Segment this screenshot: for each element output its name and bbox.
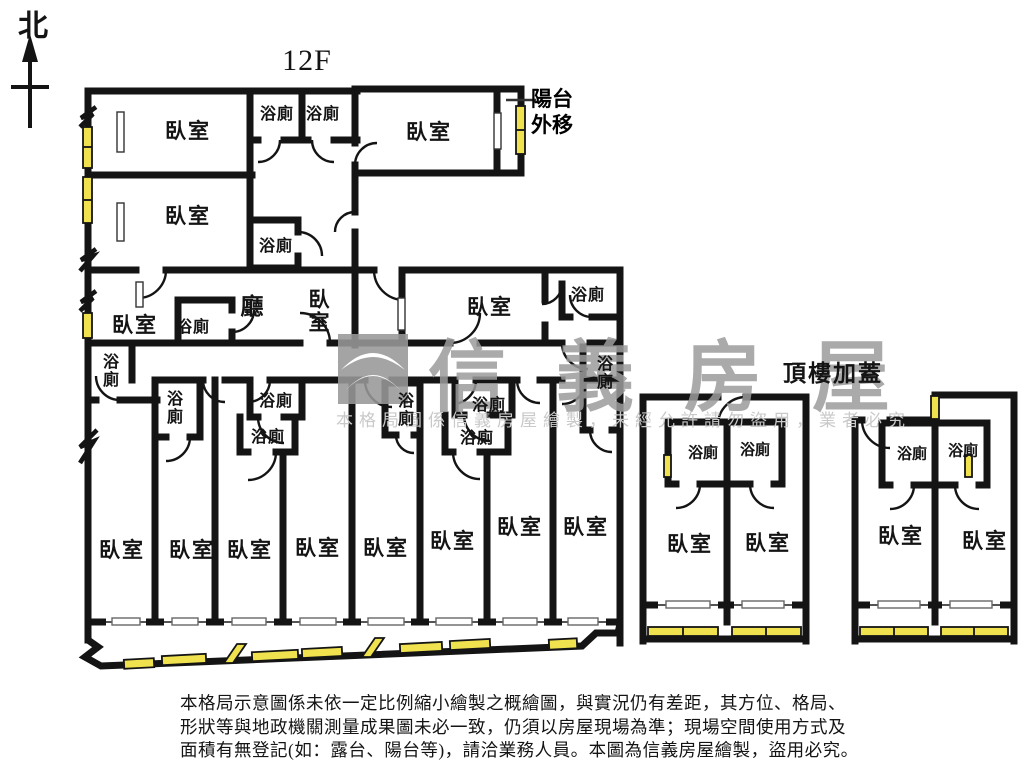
room-label-bedroom: 臥室 — [295, 532, 341, 562]
room-label-bedroom: 臥室 — [363, 532, 409, 562]
room-label-bathroom: 浴廁 — [96, 353, 120, 389]
room-label-bedroom: 臥室 — [962, 525, 1008, 555]
floor-title: 12F — [282, 44, 332, 78]
north-compass-icon — [11, 34, 49, 128]
compass-north-label: 北 — [18, 1, 48, 45]
room-label-bedroom: 臥室 — [112, 309, 158, 339]
disclaimer-line-1: 本格局示意圖係未依一定比例縮小繪製之概繪圖，與實況仍有差距，其方位、格局、 — [180, 692, 920, 716]
disclaimer-line-2: 形狀等與地政機關測量成果圖未必一致，仍須以房屋現場為準；現場空間使用方式及 — [180, 716, 920, 740]
room-label-bedroom: 臥室 — [667, 528, 713, 558]
room-label-living-room: 廳 — [241, 287, 264, 321]
room-label-bathroom: 浴廁 — [948, 440, 978, 461]
room-label-bedroom: 臥室 — [430, 525, 476, 555]
rooftop-addition-label: 頂樓加蓋 — [783, 354, 883, 388]
room-label-bedroom: 臥室 — [165, 115, 211, 145]
room-label-bathroom: 浴廁 — [176, 313, 210, 337]
room-label-bathroom: 浴廁 — [590, 355, 614, 391]
room-label-bathroom: 浴廁 — [688, 442, 718, 463]
room-label-bedroom: 臥室 — [878, 520, 924, 550]
balcony-moved-note: 陽台 外移 — [531, 86, 573, 138]
room-label-bedroom: 臥室 — [406, 116, 452, 146]
door-swing-arcs — [96, 140, 979, 509]
room-label-bathroom: 浴廁 — [391, 392, 415, 428]
room-label-bathroom: 浴廁 — [306, 100, 340, 124]
disclaimer-text: 本格局示意圖係未依一定比例縮小繪製之概繪圖，與實況仍有差距，其方位、格局、 形狀… — [180, 692, 920, 763]
room-label-bathroom: 浴廁 — [259, 232, 293, 256]
room-label-bedroom: 臥室 — [745, 527, 791, 557]
watermark-notice: 本格局圖係信義房屋繪製，未經允許請勿盜用，業者必究 — [336, 411, 911, 430]
room-label-bedroom: 臥室 — [467, 291, 513, 321]
room-label-bedroom: 臥室 — [99, 534, 145, 564]
room-label-bathroom: 浴廁 — [472, 391, 506, 415]
room-label-bedroom: 臥室 — [497, 511, 543, 541]
room-label-bathroom: 浴廁 — [160, 390, 184, 426]
room-label-bathroom: 浴廁 — [260, 100, 294, 124]
room-label-bedroom: 臥室 — [227, 534, 273, 564]
room-label-bathroom: 浴廁 — [460, 424, 494, 448]
room-label-bathroom: 浴廁 — [897, 443, 927, 464]
room-label-bedroom: 臥室 — [303, 288, 333, 334]
room-label-bathroom: 浴廁 — [740, 439, 770, 460]
room-label-bedroom: 臥室 — [169, 534, 215, 564]
room-label-bathroom: 浴廁 — [251, 423, 285, 447]
floor-plan-page: 信義房屋 本格局圖係信義房屋繪製，未經允許請勿盜用，業者必究 北 12F 陽台 … — [0, 0, 1024, 768]
disclaimer-line-3: 面積有無登記(如：露台、陽台等)，請洽業務人員。本圖為信義房屋繪製，盜用必究。 — [180, 739, 920, 763]
room-label-bathroom: 浴廁 — [259, 387, 293, 411]
room-label-bathroom: 浴廁 — [571, 281, 605, 305]
room-label-bedroom: 臥室 — [563, 511, 609, 541]
room-label-bedroom: 臥室 — [165, 200, 211, 230]
